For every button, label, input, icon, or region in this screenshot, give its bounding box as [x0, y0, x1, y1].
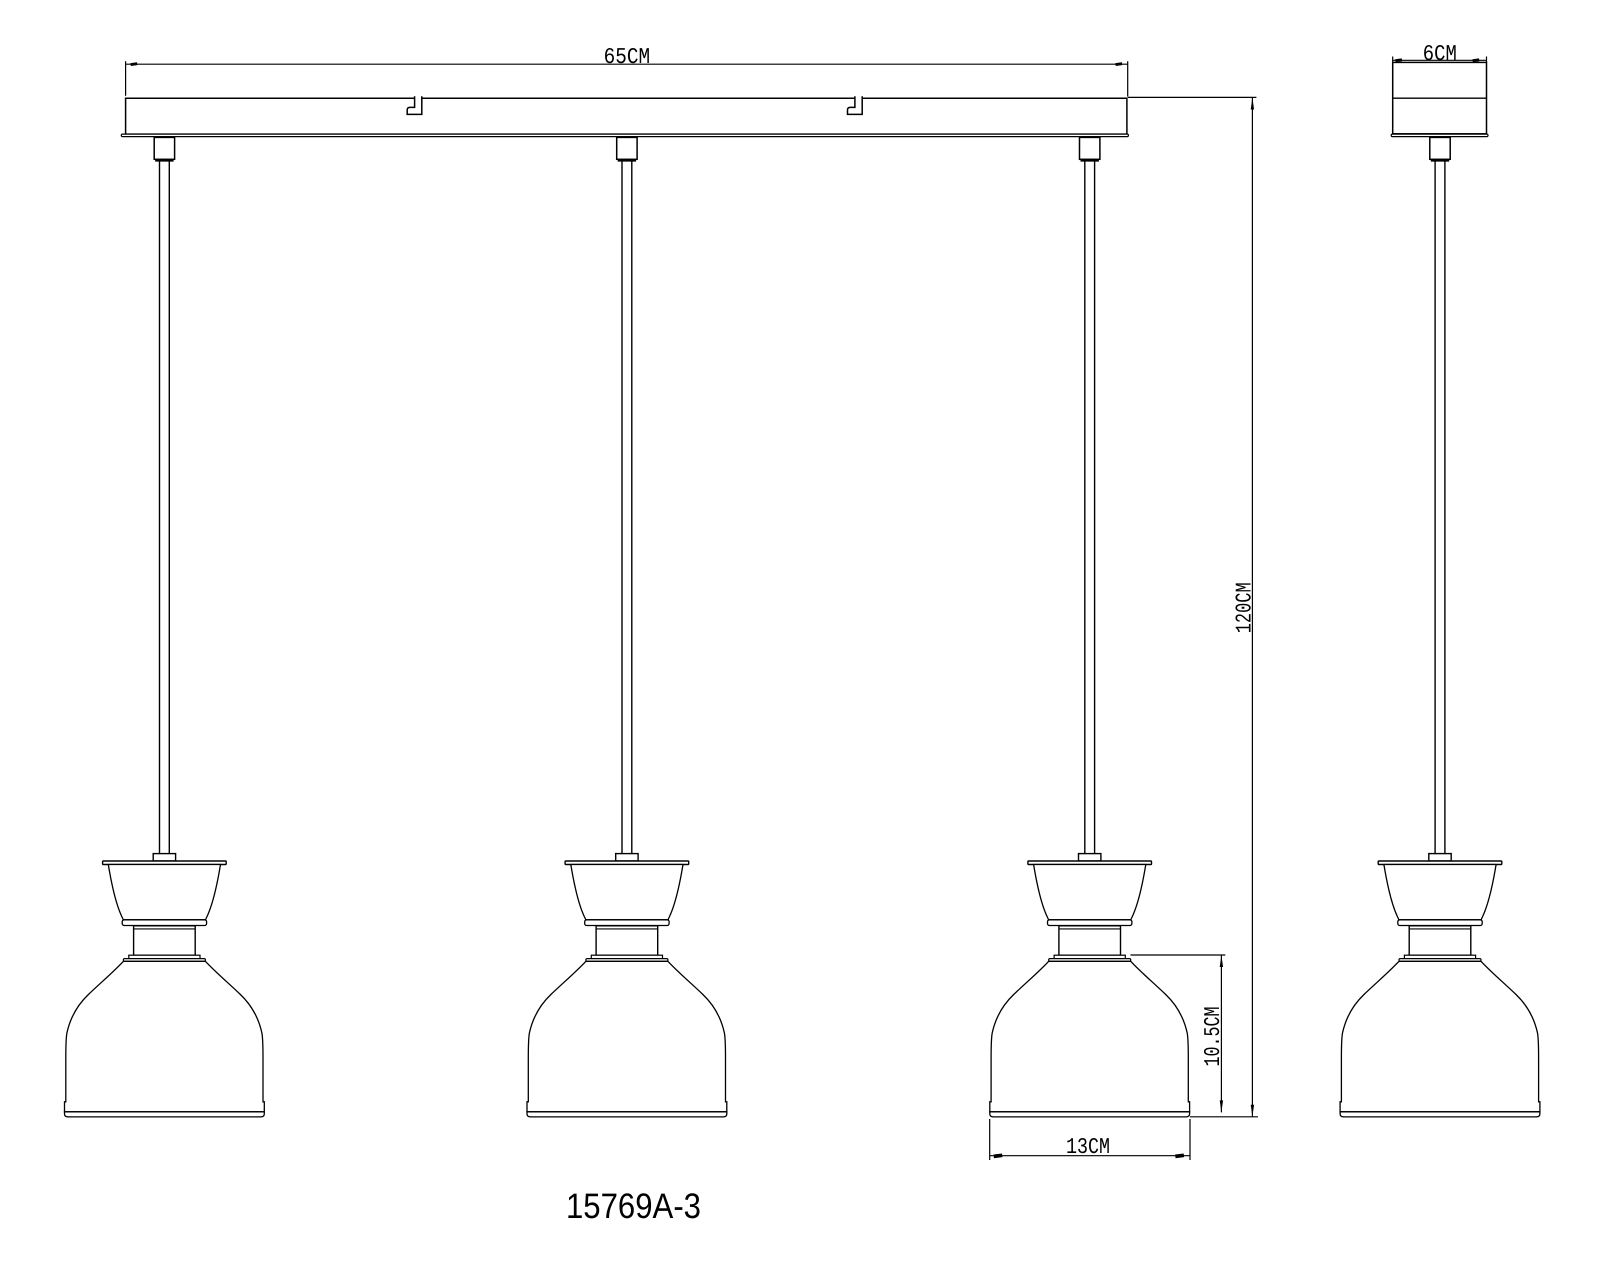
svg-text:15769A-3: 15769A-3: [566, 1186, 701, 1226]
svg-text:120CM: 120CM: [1231, 582, 1257, 633]
svg-text:13CM: 13CM: [1066, 1134, 1110, 1160]
svg-text:6CM: 6CM: [1423, 41, 1457, 67]
svg-text:10.5CM: 10.5CM: [1200, 1007, 1226, 1067]
svg-text:65CM: 65CM: [604, 44, 651, 70]
